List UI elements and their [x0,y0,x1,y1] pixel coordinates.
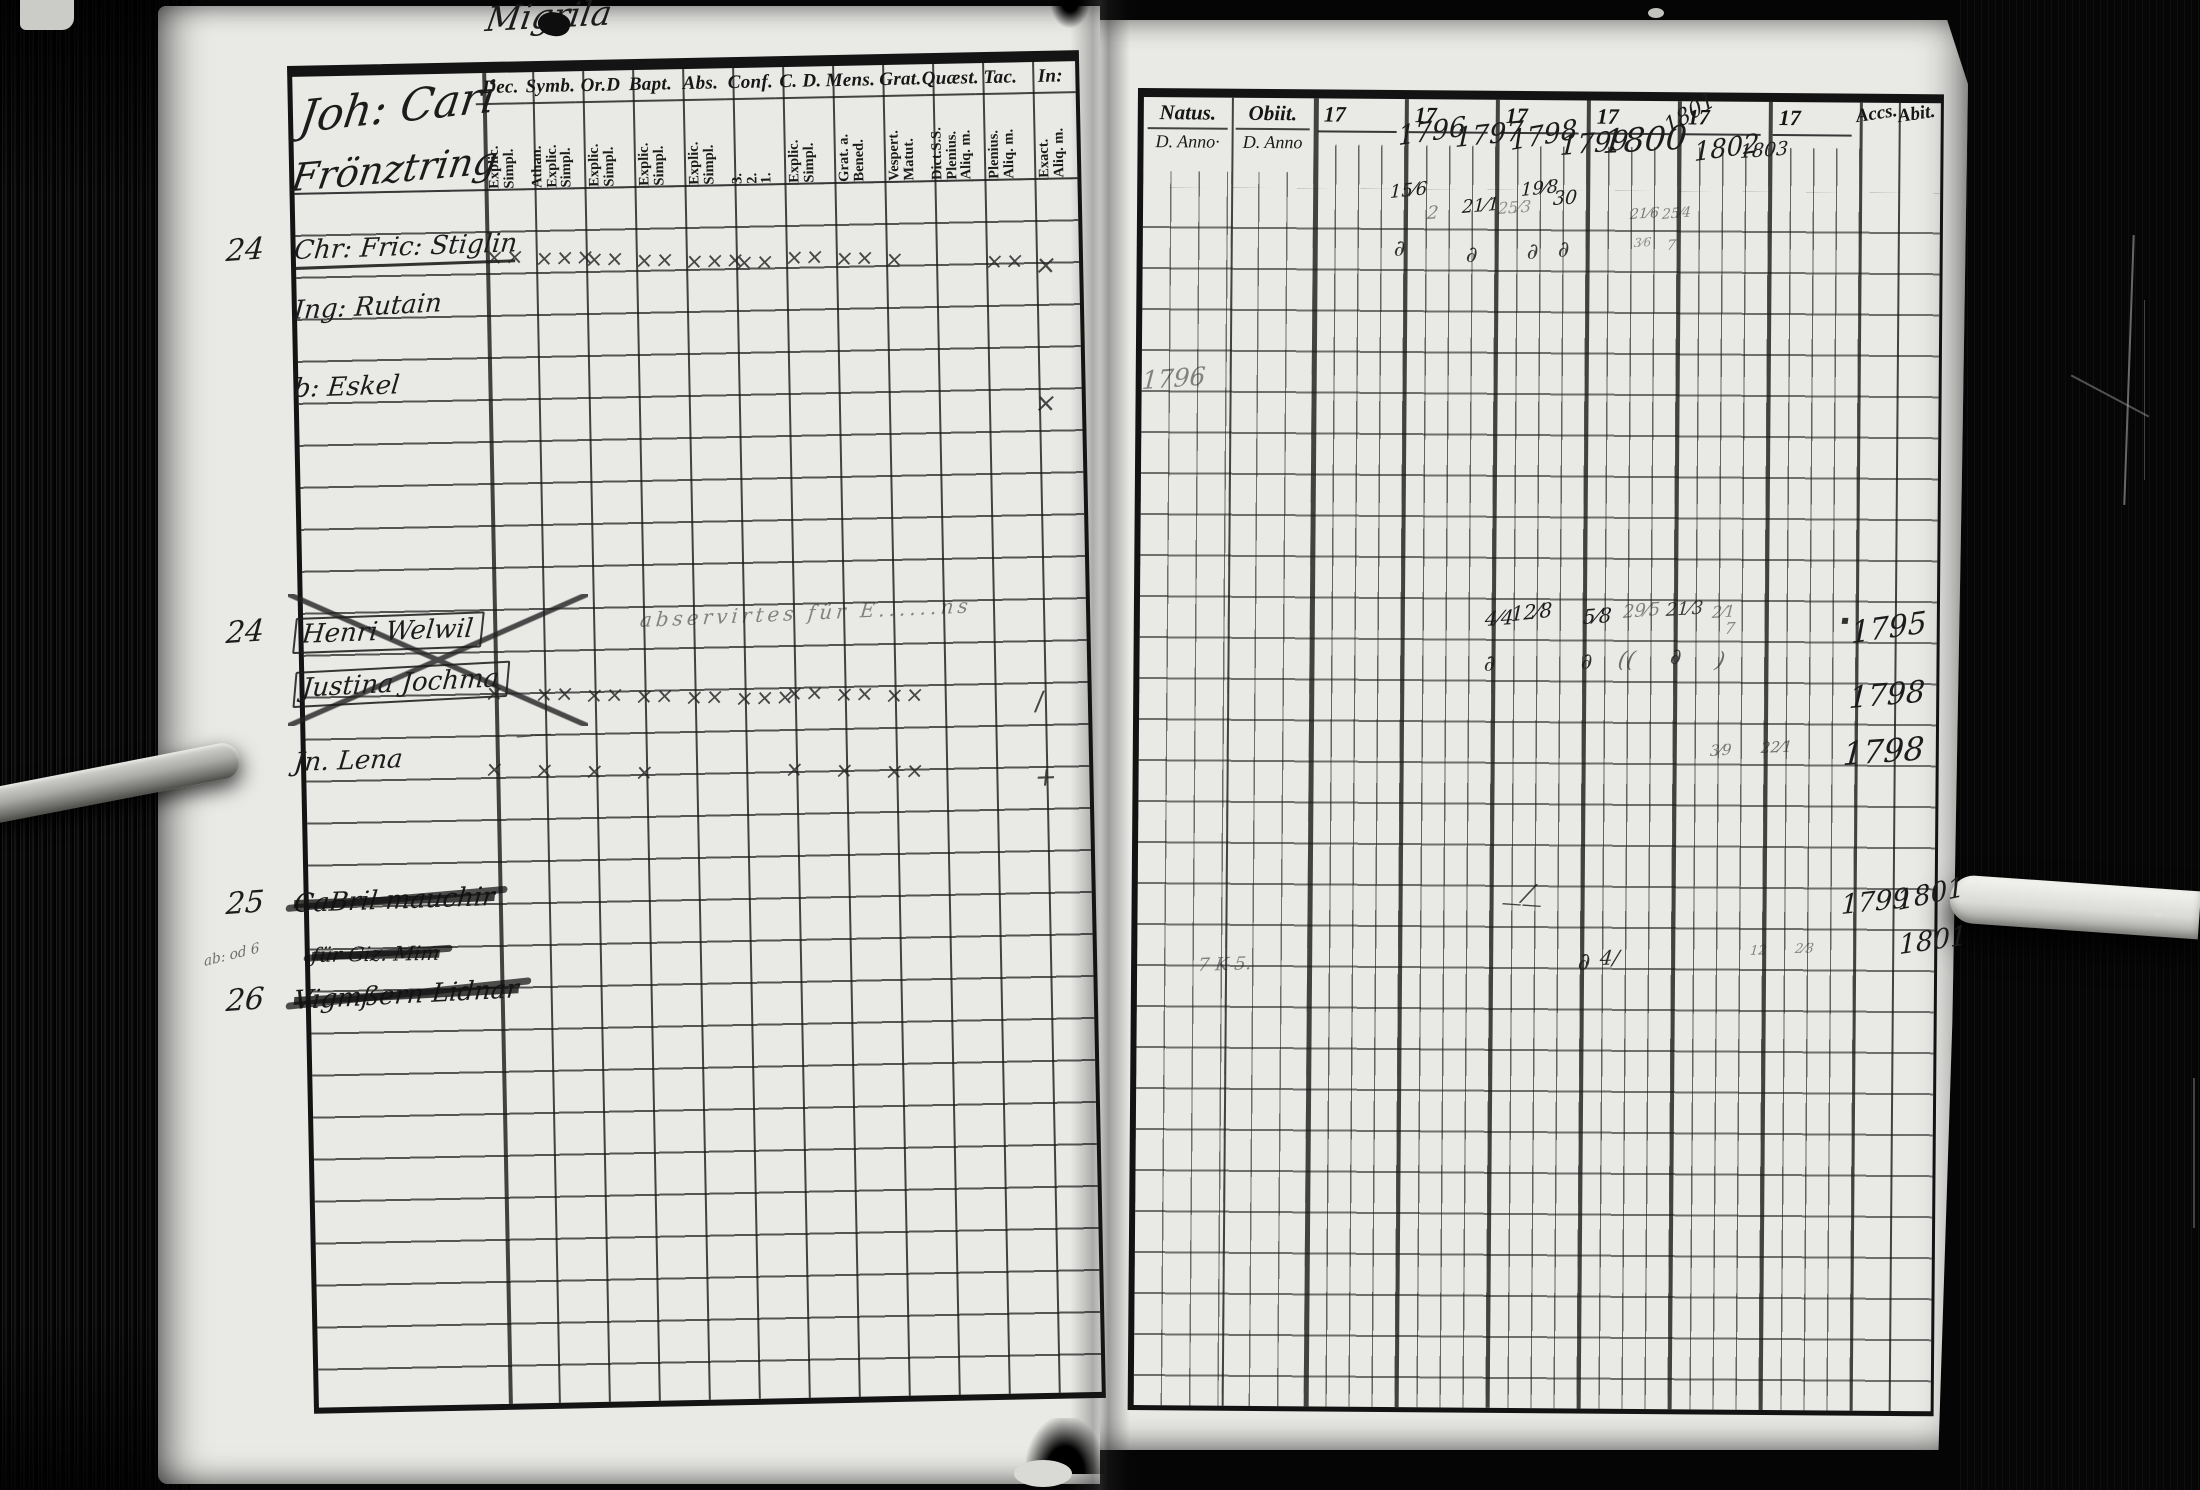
handwritten-annotation: 7 [1724,619,1736,638]
attendance-mark: ×× [584,247,627,274]
column-sublabel: Simpl. [651,104,667,185]
decade-underline [1318,130,1397,133]
attendance-mark: × [1033,388,1060,419]
attendance-mark: ×× [684,685,727,712]
attendance-mark: ×× [884,759,927,786]
attendance-mark: × [834,758,857,784]
right-register-table: Natus.D. Anno·Obiit.D. Anno171717171717A… [1128,88,1944,1416]
white-chip [20,0,74,30]
handwritten-annotation: ∂ [1580,649,1594,675]
decade-label: 17 [1314,98,1405,128]
entry-number: 24 [225,613,266,651]
attendance-mark: ×× [584,683,627,710]
entry-number: 25 [225,884,266,922]
date-subcolumns [1222,172,1314,1407]
natus-sublabel: D. Anno· [1147,127,1227,153]
column-sublabel: Simpl. [558,106,574,187]
year-annotation: 1803 [1739,138,1789,164]
decade-underline [1773,134,1852,137]
handwritten-annotation: ∂ [1557,237,1570,263]
handwritten-annotation: 22⁄1 [1760,737,1793,757]
column-sublabel: 1. [758,102,774,183]
handwritten-annotation: (( [1616,648,1637,673]
attendance-mark: ×× [534,682,577,709]
year-group-subcolumns [1668,147,1769,1410]
entry-name: Henri Welwil [292,611,485,654]
decade-label: 17 [1769,102,1860,132]
handwritten-annotation: 4∕ [1599,945,1621,970]
attendance-mark: × [484,681,507,707]
year-group-subcolumns [1395,145,1496,1408]
column-natus: Natus.D. Anno· [1143,97,1232,172]
attendance-mark: ×× [834,246,877,273]
column-sublabel: Simpl. [701,103,717,184]
handwritten-annotation: ∂ [1393,236,1406,262]
handwritten-annotation: 3⁄6 [1633,235,1651,250]
handwritten-annotation: ∂ [1483,651,1497,677]
entry-number: 26 [225,981,266,1019]
book-cover-edge-right [1960,0,2200,1490]
handwritten-annotation: ∂ [1526,239,1540,265]
attendance-mark: ×× [784,681,827,708]
handwritten-annotation: 21⁄6 [1629,205,1659,223]
date-subcolumns [1134,171,1232,1406]
attendance-mark: ×× [884,683,927,710]
scratch [2193,1078,2195,1228]
obiit-sublabel: D. Anno [1235,128,1309,154]
handwritten-dash: —— [515,723,552,747]
handwritten-annotation: 25⁄4 [1662,204,1692,223]
scratch [2144,300,2145,480]
column-sublabel: Simpl. [801,101,817,182]
column-obiit: Obiit.D. Anno [1231,98,1314,173]
handwritten-annotation: 2 [1426,202,1439,224]
handwritten-annotation: 12 [1749,943,1767,959]
handwritten-annotation: 7 [1666,237,1676,254]
entry-name: Jn. Lena [292,744,404,778]
handwritten-annotation: 3⁄9 [1709,740,1732,760]
column-sublabel: Simpl. [601,105,617,186]
handwritten-annotation: 15⁄6 [1390,178,1428,203]
column-sublabel: Athan. [529,107,545,188]
attendance-mark: × [484,757,507,783]
attendance-mark: × [534,758,557,784]
attendance-mark: ×× [484,245,527,272]
handwritten-annotation: 2⁄3 [1794,941,1814,957]
handwritten-annotation: 7 K 5. [1197,953,1253,976]
handwritten-annotation: 21⁄3 [1665,597,1704,621]
handwritten-annotation: ∂ [1577,947,1592,976]
attendance-mark: × [1033,250,1060,281]
handwritten-annotation: 1798 [1848,674,1926,716]
handwritten-annotation: 1796 [1141,361,1207,395]
entry-name: für Giz. Mim [311,941,442,967]
attendance-mark: ×× [984,249,1027,276]
attendance-mark: × [784,757,807,783]
entry-number: 24 [225,231,266,269]
attendance-mark: ×× [834,682,877,709]
white-dot [1648,8,1664,18]
gutter-crease-top [1050,0,1090,28]
attendance-mark: ×× [784,245,827,272]
column-sublabel: Aliq. m. [1001,97,1017,178]
attendance-mark: × [884,247,907,273]
column-sublabel: Aliq. m. [958,98,974,179]
register-book-scan: Dec.Explic.Simpl.Symb.Athan.Explic.Simpl… [0,0,2200,1490]
handwritten-annotation: 21⁄1 [1461,194,1499,218]
year-group-subcolumns [1577,147,1678,1410]
column-sublabel: Aliq. m. [1051,96,1067,177]
attendance-mark: × [584,759,607,785]
year-group-subcolumns [1759,148,1860,1411]
year-group-subcolumns [1304,144,1405,1407]
white-blob [1014,1460,1072,1487]
attendance-mark: ×× [634,248,677,275]
handwritten-annotation: 12⁄8 [1511,598,1553,627]
column-sublabel: Dict.S.S. [929,99,945,180]
column-sublabel: Simpl. [501,107,517,188]
entry-name: b: Eskel [292,370,401,404]
scratch [2154,910,2163,917]
attendance-mark: ×× [734,250,777,277]
obiit-label: Obiit. [1232,98,1314,127]
handwritten-annotation: 30 [1552,186,1578,210]
attendance-mark: × [634,760,657,786]
handwritten-annotation: 1798 [1842,729,1926,773]
column-sublabel: 3. [729,103,745,184]
handwritten-annotation: 5⁄8 [1582,603,1612,629]
attendance-mark: + [1033,762,1060,793]
column-sublabel: Bened. [851,100,867,181]
handwritten-annotation: 29⁄5 [1622,599,1660,623]
column-sublabel: Matut. [901,99,917,180]
natus-label: Natus. [1144,97,1232,126]
attendance-mark: ×× [634,684,677,711]
year-group-subcolumns [1486,146,1587,1409]
